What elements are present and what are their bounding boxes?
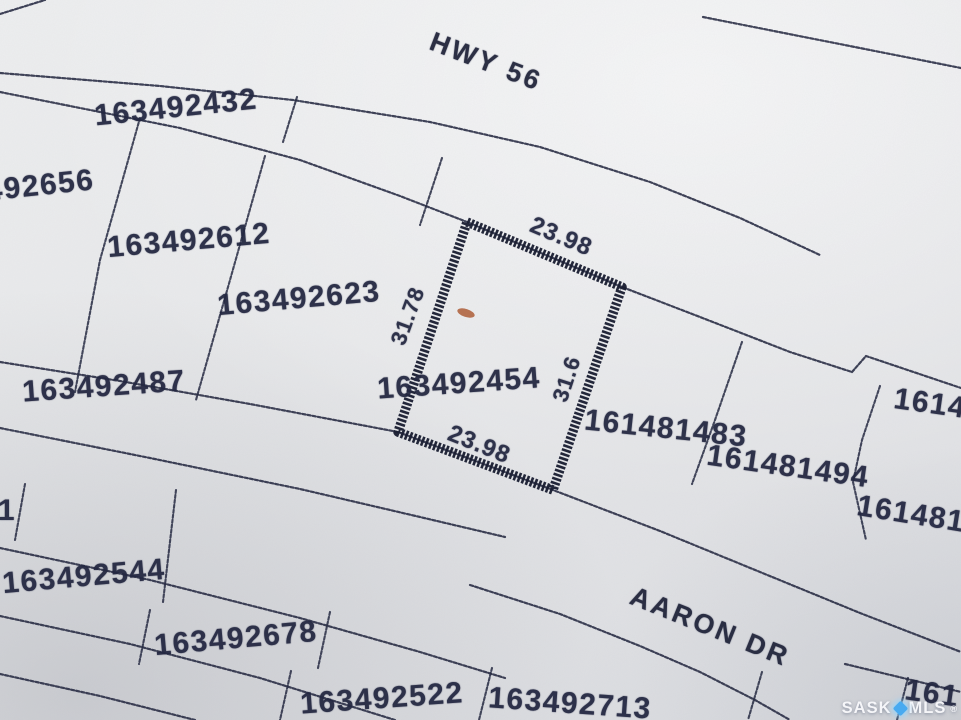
watermark-text-left: SASK bbox=[842, 699, 892, 718]
registered-mark: ® bbox=[950, 704, 958, 714]
watermark-saskmls: SASK MLS ® bbox=[842, 699, 958, 718]
watermark-text-right: MLS bbox=[909, 699, 947, 718]
sparkle-diamond-icon bbox=[892, 701, 908, 717]
plat-map-photo: HWY 56 AARON DR 163492432 492656 1634926… bbox=[0, 0, 961, 720]
parcel-label-1: 1 bbox=[0, 494, 16, 528]
